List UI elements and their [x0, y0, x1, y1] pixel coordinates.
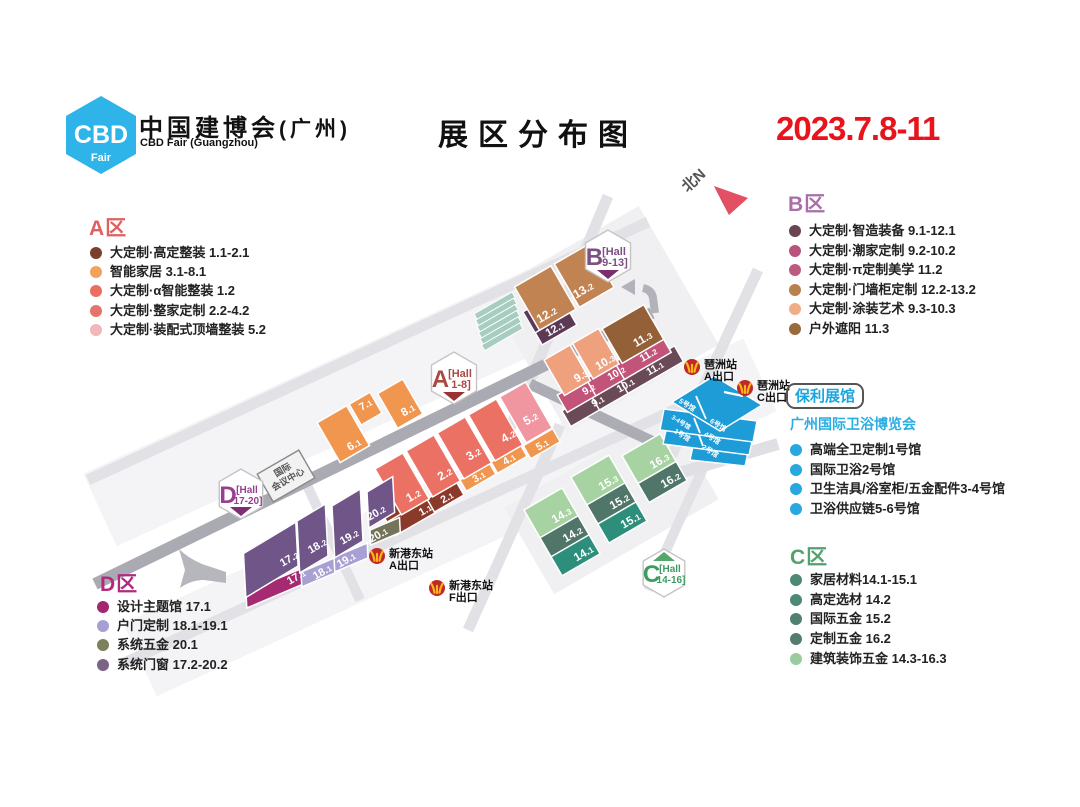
svg-text:琶洲站: 琶洲站 — [757, 378, 790, 392]
svg-text:C出口: C出口 — [757, 390, 787, 404]
svg-text:A: A — [432, 366, 449, 393]
svg-text:9-13]: 9-13] — [602, 257, 628, 269]
svg-text:Fair: Fair — [91, 152, 112, 164]
svg-text:1-8]: 1-8] — [451, 379, 471, 391]
svg-text:CBD: CBD — [74, 121, 128, 149]
svg-text:A出口: A出口 — [704, 369, 734, 383]
svg-text:新港东站: 新港东站 — [389, 546, 433, 560]
svg-text:[Hall: [Hall — [236, 485, 258, 496]
svg-text:北N: 北N — [679, 166, 710, 196]
svg-text:17-20]: 17-20] — [234, 496, 263, 507]
svg-text:14-16]: 14-16] — [657, 575, 686, 586]
svg-text:[Hall: [Hall — [659, 564, 681, 575]
svg-text:新港东站: 新港东站 — [449, 578, 493, 592]
svg-text:琶洲站: 琶洲站 — [704, 357, 737, 371]
svg-text:F出口: F出口 — [449, 590, 478, 604]
svg-text:A出口: A出口 — [389, 558, 419, 572]
svg-text:B: B — [586, 244, 603, 271]
